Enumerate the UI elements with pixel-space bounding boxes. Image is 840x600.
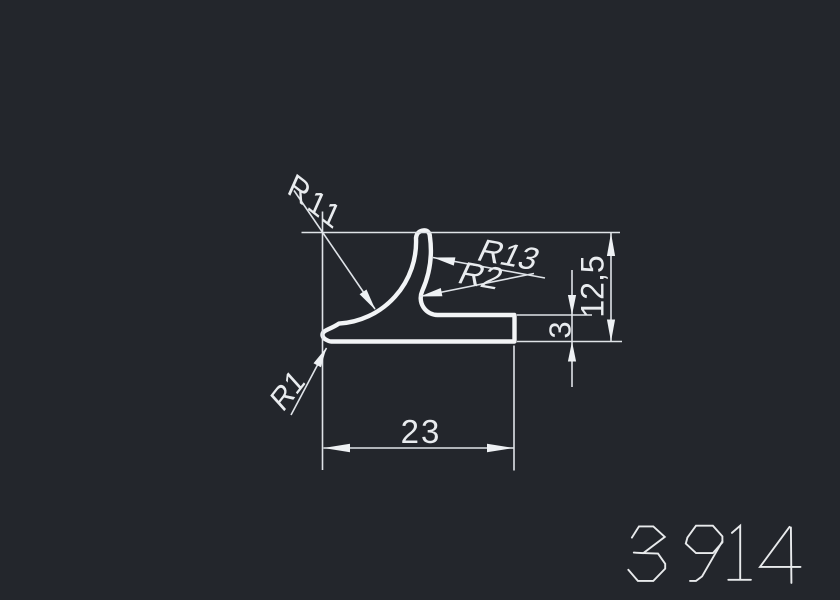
svg-text:3: 3 — [543, 321, 578, 338]
svg-text:12,5: 12,5 — [575, 255, 611, 317]
svg-text:23: 23 — [401, 413, 442, 450]
